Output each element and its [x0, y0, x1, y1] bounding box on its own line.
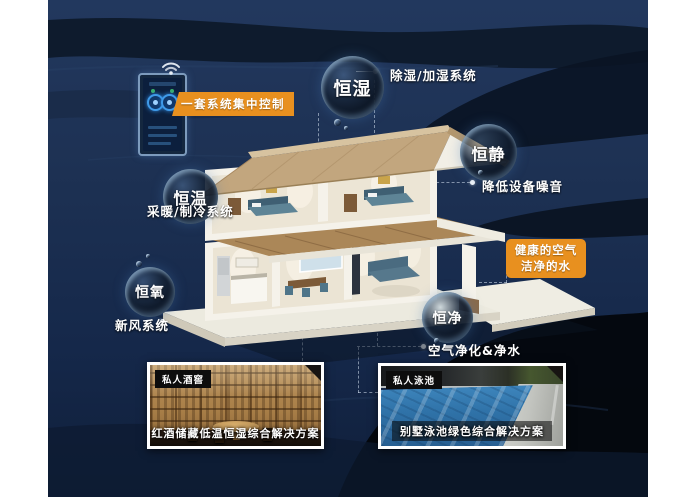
pool-photo-caption: 别墅泳池绿色综合解决方案 — [381, 421, 563, 441]
bubble-oxygen: 恒氧 — [125, 267, 175, 317]
wine-photo-caption: 红酒储藏低温恒湿综合解决方案 — [150, 425, 321, 441]
highlight-line2: 洁净的水 — [510, 259, 582, 275]
screen-row — [148, 134, 177, 137]
pool-caption-text: 别墅泳池绿色综合解决方案 — [392, 421, 552, 441]
pool-photo-tag: 私人泳池 — [386, 371, 442, 389]
mini-bubble — [146, 254, 150, 258]
wine-photo-tag: 私人酒窖 — [155, 370, 211, 388]
label-humidity-system: 除湿/加湿系统 — [390, 65, 477, 84]
wifi-icon — [159, 55, 183, 75]
photo-wine-cellar: 私人酒窖 红酒储藏低温恒湿综合解决方案 — [147, 362, 324, 449]
mini-bubble — [478, 170, 483, 175]
label-quiet-system: 降低设备噪音 — [482, 176, 563, 195]
mini-bubble — [334, 119, 341, 126]
label-temperature-system: 采暖/制冷系统 — [147, 201, 234, 220]
highlight-health-box: 健康的空气 洁净的水 — [506, 239, 586, 278]
status-led — [151, 89, 155, 93]
mini-bubble — [344, 126, 348, 130]
bubble-humidity: 恒湿 — [321, 56, 384, 119]
bubble-purity: 恒净 — [422, 292, 473, 343]
control-label: 一套系统集中控制 — [172, 92, 294, 116]
wine-photo-corner-fold — [305, 365, 321, 381]
screen-row — [148, 126, 177, 129]
photo-private-pool: 私人泳池 别墅泳池绿色综合解决方案 — [378, 363, 566, 449]
screen-titlebar — [149, 82, 176, 86]
label-purity-system: 空气净化&净水 — [428, 340, 521, 359]
pool-photo-corner-fold — [547, 366, 563, 382]
mini-bubble — [136, 261, 142, 267]
highlight-line1: 健康的空气 — [510, 243, 582, 259]
screen-row — [148, 142, 171, 145]
status-led — [170, 89, 174, 93]
bubble-quiet: 恒静 — [460, 124, 517, 181]
label-oxygen-system: 新风系统 — [115, 315, 169, 334]
infographic-canvas: 一套系统集中控制 恒湿 恒静 恒温 恒氧 恒净 除湿/加湿系统 降低设备噪音 采… — [0, 0, 700, 497]
